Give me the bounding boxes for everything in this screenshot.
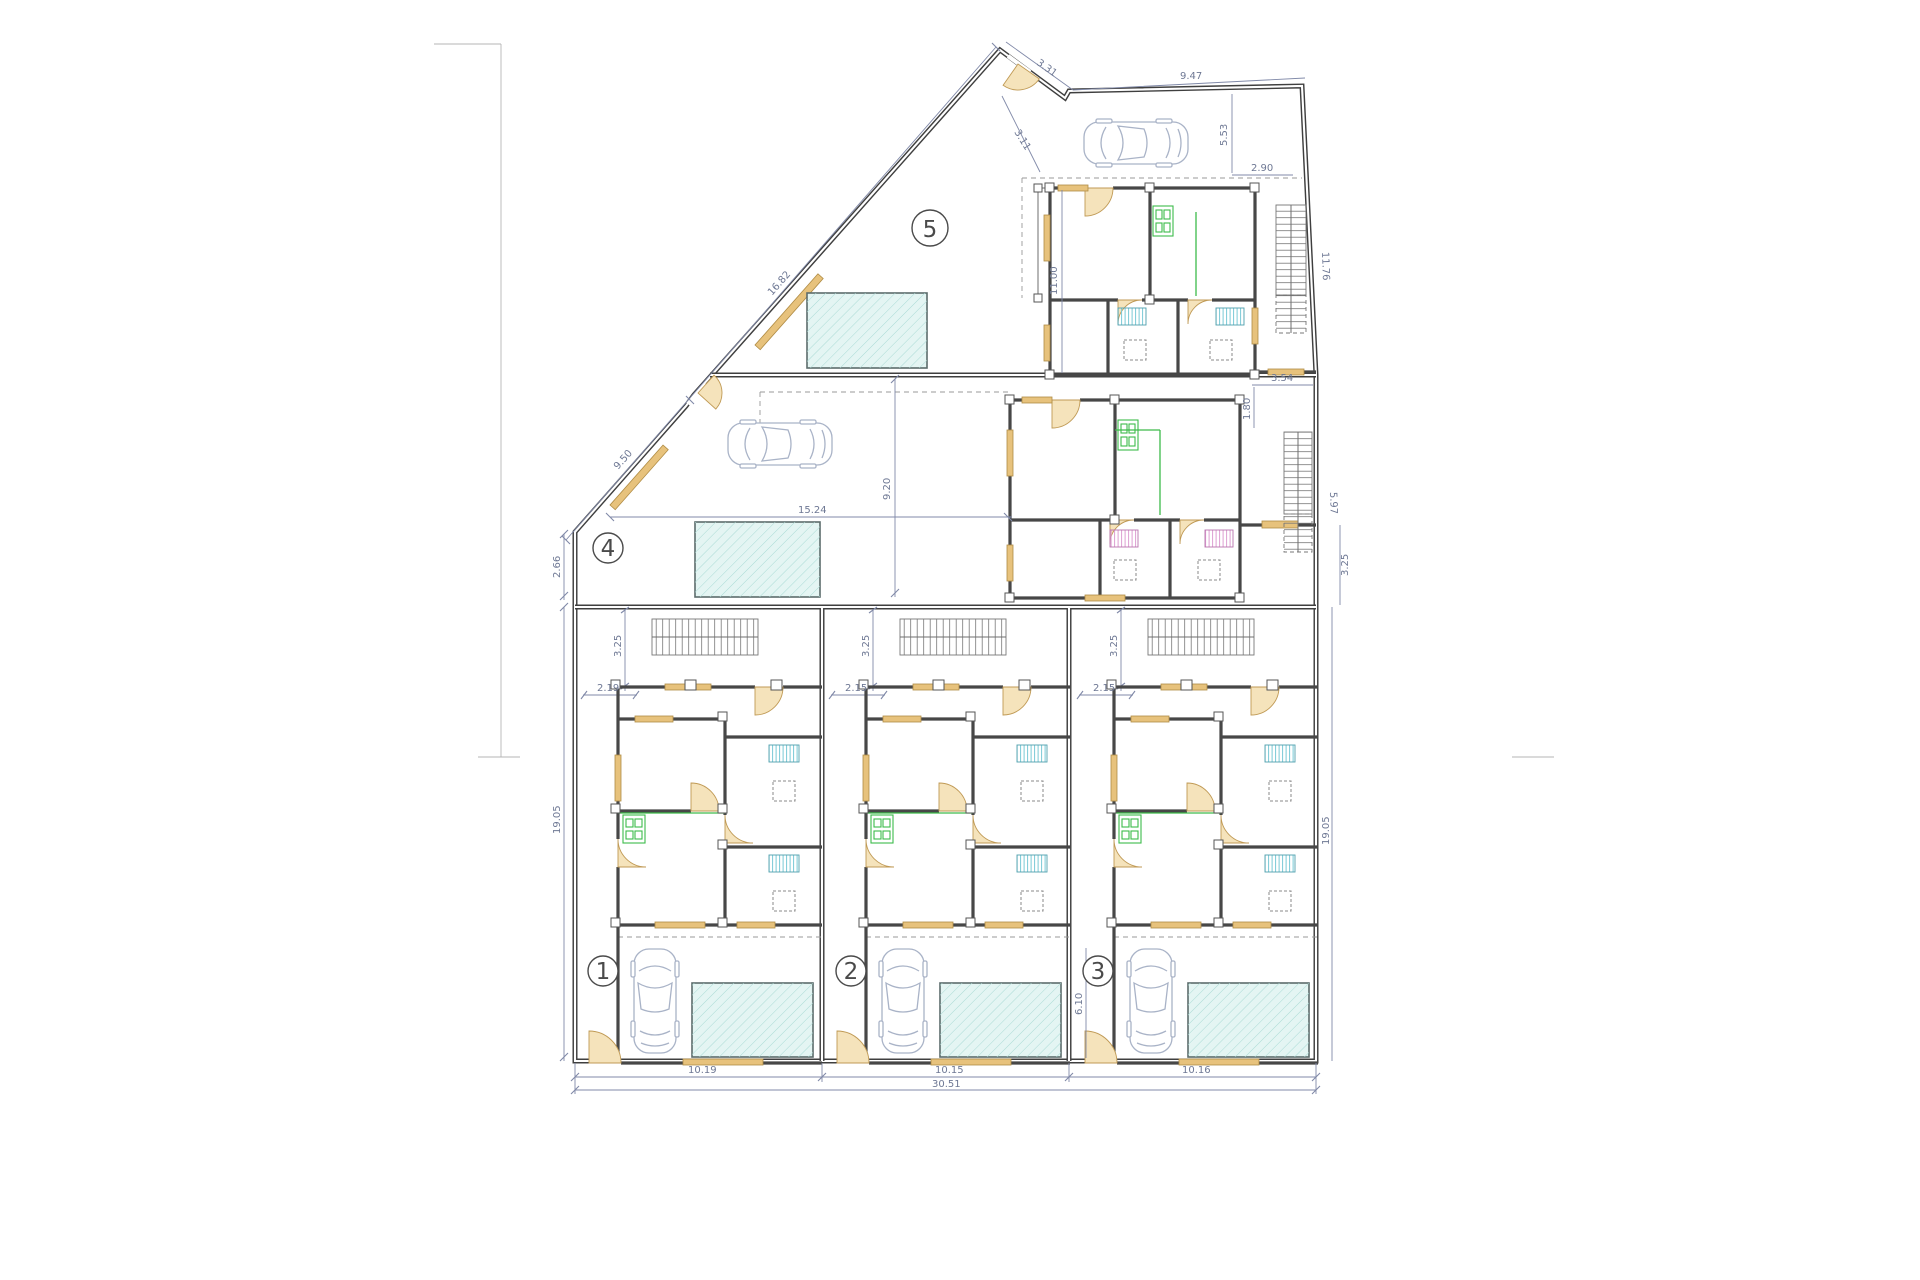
dim-label-right-top-v: 5.53 (1219, 124, 1230, 146)
window-lintel (610, 445, 668, 510)
unit2 (829, 607, 1070, 1065)
unit2-badge-label: 2 (844, 959, 859, 985)
dim-label-right-small: 3.25 (1340, 554, 1351, 576)
sink-icon (1216, 308, 1244, 325)
sink-icon (1205, 530, 1233, 547)
toilet-icon (1210, 340, 1232, 360)
unit4-house (695, 392, 1316, 602)
dim-label-unit1-entry: 2.19 (597, 683, 619, 694)
floor-plan-canvas: 10.19 10.15 10.16 30.51 19.05 2.66 19.05… (0, 0, 1920, 1280)
wall-posts (1005, 395, 1244, 602)
dim-label-unit2-frontage: 10.15 (935, 1065, 964, 1076)
window-lintel (1252, 308, 1258, 344)
unit5-badge-label: 5 (923, 217, 938, 243)
dim-label-terrace-width: 15.24 (798, 505, 827, 516)
window-lintel (1044, 215, 1050, 261)
dim-label-left-small: 2.66 (552, 556, 563, 578)
dim-label-total-frontage: 30.51 (932, 1079, 961, 1090)
pool-hatch (695, 522, 820, 597)
dim-label-street-top: 9.47 (1180, 71, 1202, 82)
unit1-badge-label: 1 (596, 959, 611, 985)
toilet-icon (1198, 560, 1220, 580)
window-lintel (1022, 397, 1052, 403)
sink-icon (1110, 530, 1138, 547)
dim-label-gap-v: 1.80 (1242, 398, 1253, 420)
toilet-icon (1114, 560, 1136, 580)
dim-label-court-depth: 6.10 (1074, 993, 1085, 1015)
bathroom-door (1180, 520, 1204, 544)
window-lintel (1007, 545, 1013, 581)
unit1 (581, 607, 822, 1065)
toilet-icon (1124, 340, 1146, 360)
kitchen-stove-icon (1118, 420, 1138, 450)
dim-label-unit3-porch: 3.25 (1109, 635, 1120, 657)
dim-label-right-depth: 19.05 (1321, 816, 1332, 845)
window-lintel (1058, 185, 1088, 191)
sink-icon (1118, 308, 1146, 325)
dim-label-unit1-frontage: 10.19 (688, 1065, 717, 1076)
kitchen-stove-icon (1153, 206, 1173, 236)
unit5-house (807, 119, 1316, 379)
dim-label-left-depth: 19.05 (552, 805, 563, 834)
setback-dashed-line (1022, 178, 1302, 298)
window-lintel (1044, 325, 1050, 361)
door-leaf (698, 375, 732, 409)
dim-label-terrace-depth: 9.20 (882, 478, 893, 500)
entry-door (1085, 188, 1113, 216)
dim-label-unit1-porch: 3.25 (613, 635, 624, 657)
dim-label-right-top-h: 2.90 (1251, 163, 1273, 174)
dim-label-unit3-entry: 2.15 (1093, 683, 1115, 694)
dim-label-unit2-entry: 2.15 (845, 683, 867, 694)
pool-hatch (807, 293, 927, 368)
bathroom-door (1188, 300, 1212, 324)
door-leaf (1003, 64, 1039, 100)
dim-label-apex-inner: 3.11 (1011, 128, 1032, 153)
unit3-badge-label: 3 (1091, 959, 1106, 985)
dim-label-unit2-porch: 3.25 (861, 635, 872, 657)
plot-boundary (575, 50, 1316, 1061)
window-lintel (1007, 430, 1013, 476)
dim-label-unit3-frontage: 10.16 (1182, 1065, 1211, 1076)
dim-label-stairs5-edge: 11.76 (1319, 252, 1331, 281)
dim-label-gap-h: 3.54 (1271, 373, 1293, 384)
dimensions: 10.19 10.15 10.16 30.51 19.05 2.66 19.05… (552, 42, 1351, 1094)
entry-door (1052, 400, 1080, 428)
unit3 (1077, 607, 1318, 1065)
dim-label-house5-depth: 11.00 (1049, 266, 1060, 295)
window-lintel (1085, 595, 1125, 601)
dim-label-stairs4-edge: 5.97 (1327, 492, 1339, 515)
unit4-badge-label: 4 (601, 536, 616, 562)
